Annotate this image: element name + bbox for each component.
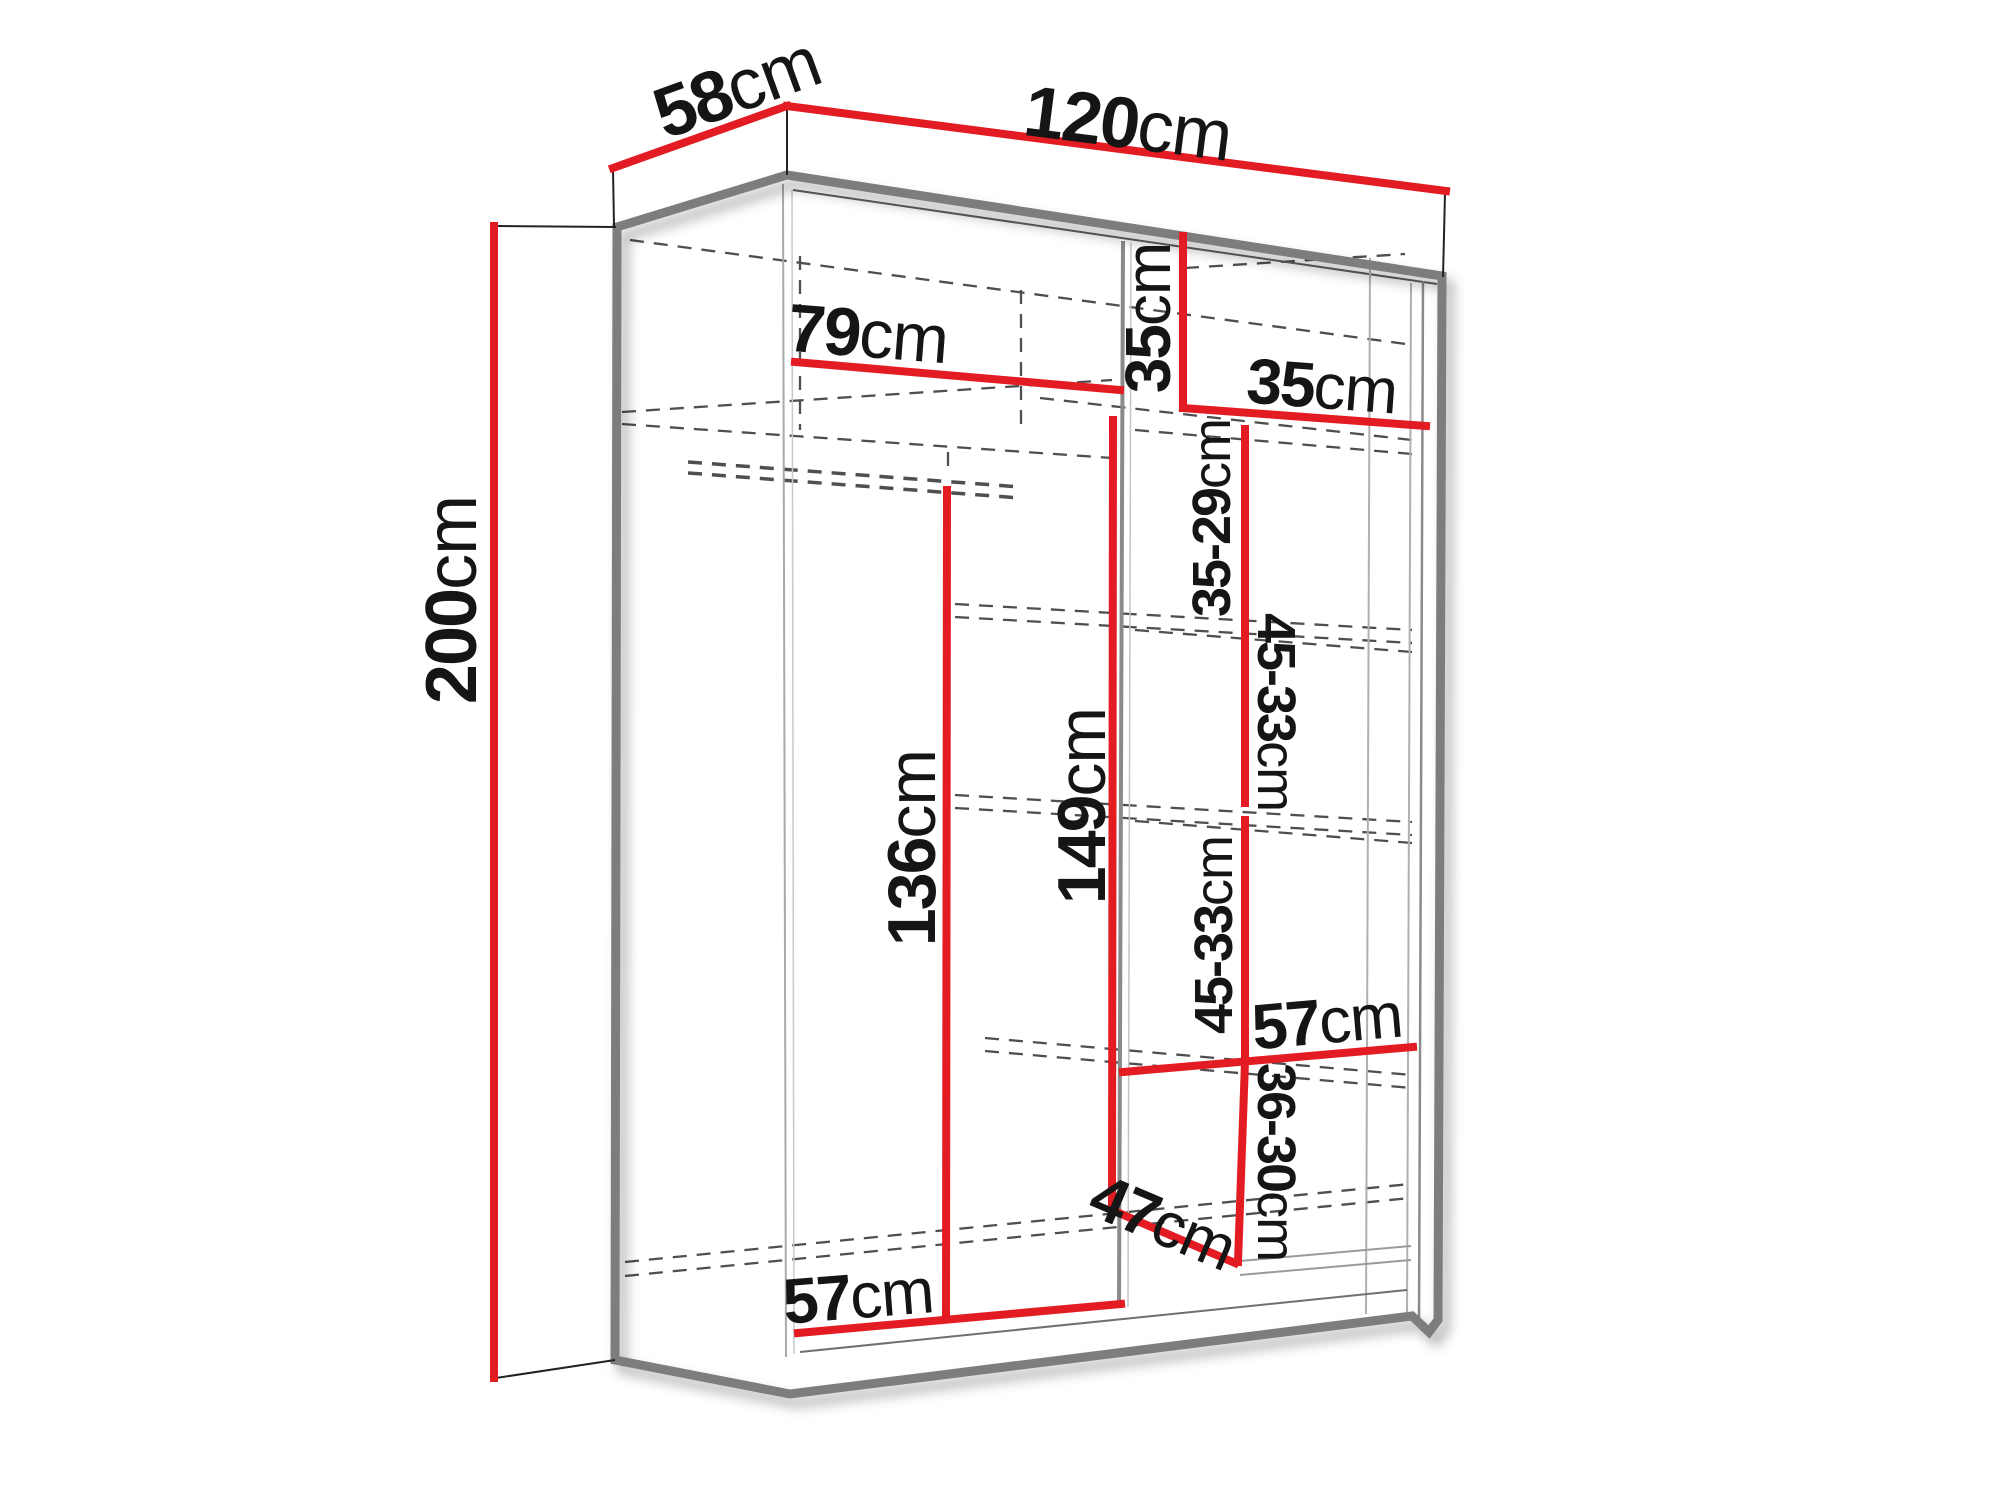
ext-height-bottom-line xyxy=(496,1360,615,1378)
diagram-canvas: 58cm120cm200cm79cm35cm35cm35-29cm45-33cm… xyxy=(0,0,2000,1500)
middle-height-label: 149cm xyxy=(1044,708,1120,904)
width-label: 120cm xyxy=(1020,71,1237,177)
top-shelf-width-label: 35cm xyxy=(1244,344,1399,427)
ext-width-right-line xyxy=(1443,193,1445,277)
hanging-rail-top-dashed-line xyxy=(688,462,1020,487)
ext-height-top-line xyxy=(496,226,616,227)
bottom-depth-label: 47cm xyxy=(1080,1159,1247,1284)
hanging-rail-bottom-dashed-line xyxy=(688,473,1020,498)
section-1-label: 35-29cm xyxy=(1182,419,1242,617)
right-wall-inner-b-line xyxy=(1419,281,1423,1322)
shelf-3-b-dashed-line xyxy=(955,808,1412,835)
bottom-width-label: 57cm xyxy=(780,1254,936,1338)
top-shelf-height-label: 35cm xyxy=(1112,243,1184,394)
depth-label: 58cm xyxy=(643,21,830,154)
left-shelf-front-dashed-line xyxy=(622,424,1112,458)
shelf-2-b-dashed-line xyxy=(955,617,1412,643)
shelf-3-a-dashed-line xyxy=(955,795,1412,822)
height-label: 200cm xyxy=(412,496,492,704)
wardrobe-dimension-diagram: 58cm120cm200cm79cm35cm35cm35-29cm45-33cm… xyxy=(0,0,2000,1500)
left-height-label: 136cm xyxy=(874,750,950,946)
left-inner-width-label: 79cm xyxy=(785,290,951,378)
middle-divider-edge-line xyxy=(1128,243,1131,1307)
bottom-shelf-bottom-line xyxy=(1240,1260,1411,1275)
ext-depth-left-line xyxy=(613,170,614,226)
section-4-label: 36-30cm xyxy=(1246,1063,1306,1261)
shelf-width-label: 57cm xyxy=(1249,979,1405,1064)
section-2-label: 45-33cm xyxy=(1246,613,1306,811)
section-3-label: 45-33cm xyxy=(1184,836,1244,1034)
shelf-1-b-dashed-line xyxy=(1135,430,1412,454)
